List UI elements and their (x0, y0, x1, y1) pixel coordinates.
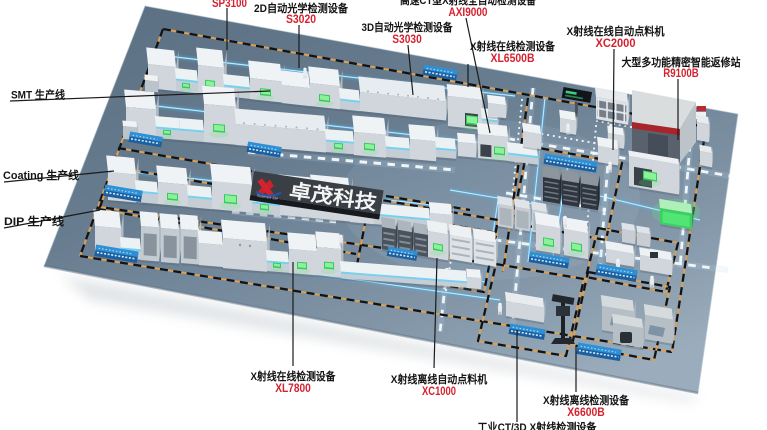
svg-text:DIP 生产线: DIP 生产线 (4, 214, 64, 228)
svg-text:X射线离线检测设备: X射线离线检测设备 (543, 393, 630, 407)
svg-text:SP3100: SP3100 (212, 0, 247, 10)
svg-text:工业CT/3D X射线检测设备: 工业CT/3D X射线检测设备 (478, 420, 598, 430)
svg-text:大型多功能精密智能返修站: 大型多功能精密智能返修站 (622, 55, 741, 69)
svg-text:高速CT型X射线全自动检测设备: 高速CT型X射线全自动检测设备 (400, 0, 537, 7)
svg-text:S3030: S3030 (392, 34, 422, 46)
svg-text:XC1000: XC1000 (422, 386, 456, 398)
svg-text:XC2000: XC2000 (596, 38, 636, 50)
svg-text:SMT 生产线: SMT 生产线 (11, 88, 65, 102)
svg-text:S3020: S3020 (286, 14, 316, 26)
svg-text:XL6500B: XL6500B (491, 53, 535, 65)
svg-text:2D自动光学检测设备: 2D自动光学检测设备 (254, 1, 349, 15)
svg-text:X射线在线检测设备: X射线在线检测设备 (251, 369, 337, 383)
svg-text:X射线在线检测设备: X射线在线检测设备 (470, 39, 556, 53)
svg-text:R9100B: R9100B (663, 68, 699, 80)
svg-text:X6600B: X6600B (567, 407, 605, 419)
svg-text:X射线在线自动点料机: X射线在线自动点料机 (567, 24, 665, 38)
svg-text:X射线离线自动点料机: X射线离线自动点料机 (391, 372, 487, 386)
svg-text:3D自动光学检测设备: 3D自动光学检测设备 (362, 20, 454, 34)
svg-text:XL7800: XL7800 (275, 383, 311, 395)
svg-text:Coating 生产线: Coating 生产线 (3, 168, 79, 182)
svg-text:AXI9000: AXI9000 (449, 7, 488, 19)
